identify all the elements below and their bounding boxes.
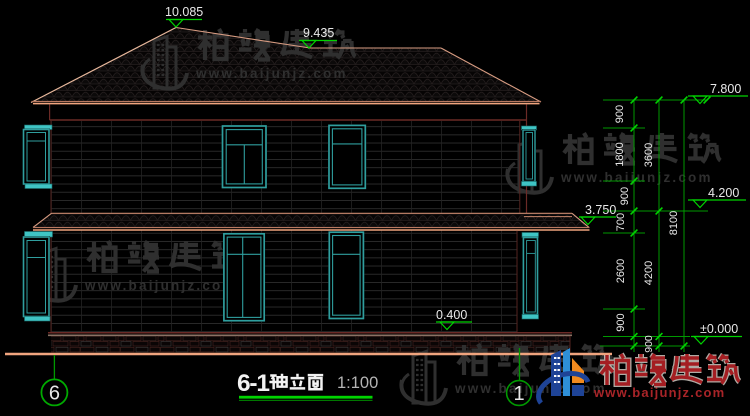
svg-text:0.400: 0.400 [436, 308, 467, 322]
svg-text:4.200: 4.200 [708, 186, 739, 200]
svg-text:±0.000: ±0.000 [700, 322, 738, 336]
svg-text:900: 900 [614, 105, 626, 123]
svg-text:6-1: 6-1 [237, 370, 269, 397]
svg-text:8100: 8100 [668, 211, 680, 235]
svg-text:www.baijunjz.com: www.baijunjz.com [593, 385, 725, 400]
svg-text:7.800: 7.800 [710, 82, 741, 96]
svg-text:1: 1 [513, 383, 524, 405]
svg-text:3600: 3600 [643, 143, 655, 167]
svg-text:700: 700 [615, 213, 627, 231]
svg-text:10.085: 10.085 [165, 5, 203, 19]
svg-text:900: 900 [643, 335, 655, 353]
svg-text:9.435: 9.435 [303, 26, 334, 40]
svg-text:1:100: 1:100 [337, 374, 378, 392]
svg-text:www.baijunjz.com: www.baijunjz.com [195, 66, 348, 81]
svg-text:900: 900 [615, 313, 627, 331]
svg-text:www.baijunjz.com: www.baijunjz.com [84, 278, 237, 293]
svg-text:900: 900 [619, 187, 631, 205]
svg-text:2600: 2600 [615, 259, 627, 283]
svg-text:3.750: 3.750 [585, 203, 616, 217]
svg-text:4200: 4200 [643, 261, 655, 285]
svg-text:www.baijunjz.com: www.baijunjz.com [560, 170, 713, 185]
svg-text:6: 6 [49, 383, 60, 405]
svg-text:1800: 1800 [614, 142, 626, 166]
